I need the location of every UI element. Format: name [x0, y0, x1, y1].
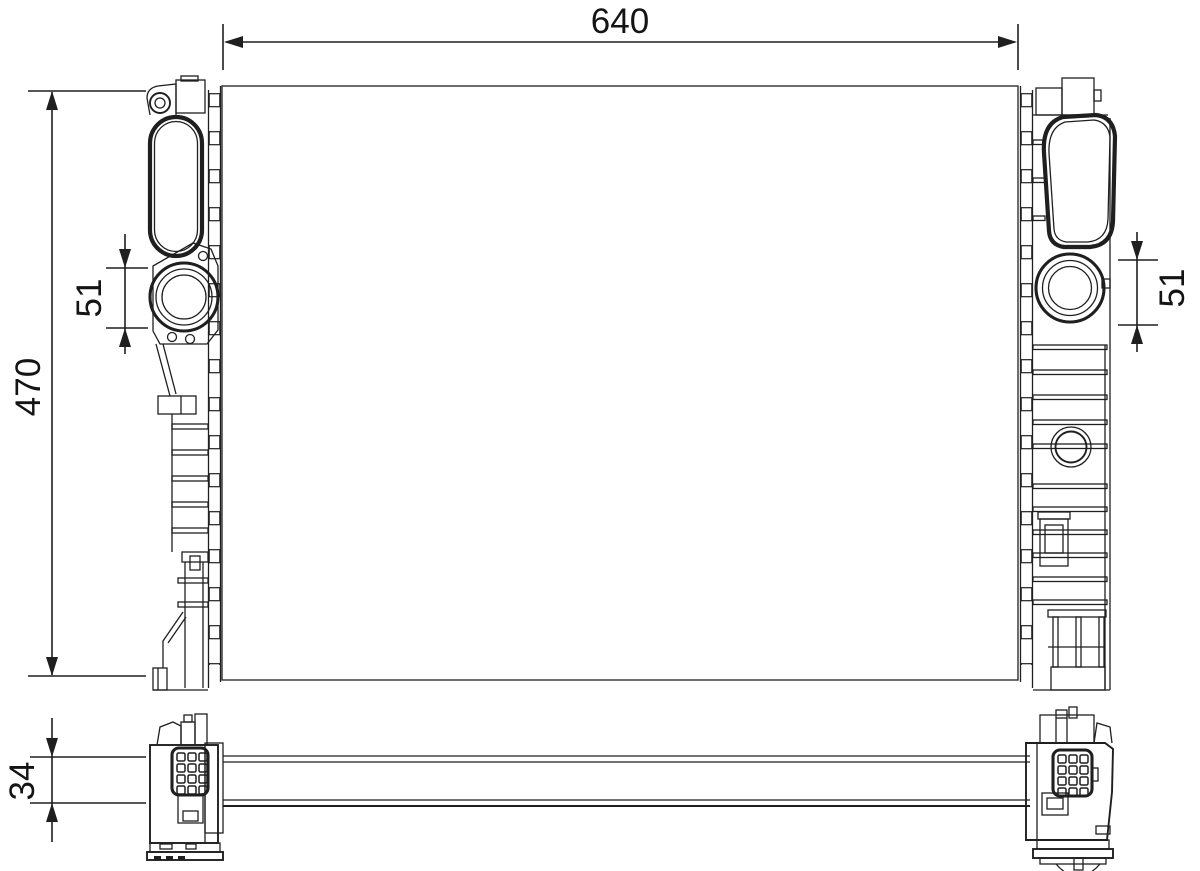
dimension-left-port: 51 [70, 234, 148, 354]
dim-label-right-port: 51 [1153, 269, 1192, 308]
left-mount-eyelet-icon [150, 93, 170, 113]
right-mount-bracket [1026, 707, 1113, 871]
dim-arrow-up-icon [119, 328, 131, 347]
dim-label-crossmember: 34 [3, 762, 42, 801]
right-top-block [1036, 88, 1062, 115]
radiator-technical-drawing: 640 470 51 51 34 [0, 0, 1200, 871]
right-side-bracket [1040, 519, 1068, 566]
right-mount-connector-grid [1057, 754, 1090, 796]
dimension-crossmember-height: 34 [3, 718, 146, 842]
dimension-right-port: 51 [1118, 232, 1192, 352]
dim-label-core-height: 470 [9, 358, 48, 416]
right-tank [1021, 78, 1116, 690]
dim-arrow-down-icon [1131, 241, 1143, 260]
plate-bolt-hole [168, 333, 177, 342]
dim-arrow-up-icon [1131, 325, 1143, 344]
dimension-core-height: 470 [9, 91, 146, 676]
lower-crossmember [147, 707, 1113, 871]
plate-bolt-hole [199, 252, 208, 261]
dim-label-core-width: 640 [591, 2, 649, 41]
right-port-circle [1036, 254, 1104, 322]
dim-arrow-down-icon [46, 738, 58, 757]
dim-arrow-left-icon [224, 36, 243, 48]
dim-arrow-up-icon [46, 803, 58, 822]
right-top-block [1062, 78, 1094, 115]
left-tank [147, 76, 221, 690]
left-tank-core-interface [209, 93, 221, 665]
dim-arrow-up-icon [46, 91, 58, 110]
left-inlet-opening [150, 117, 202, 256]
left-side-lug [158, 396, 196, 414]
dimension-core-width: 640 [223, 2, 1018, 70]
left-port-circle [150, 263, 218, 331]
left-lower-bracket [153, 552, 208, 690]
right-lower-comb [1048, 610, 1106, 690]
dim-label-left-port: 51 [70, 279, 109, 318]
drain-plug [1051, 427, 1091, 467]
plate-bolt-hole [186, 335, 195, 344]
left-mount-bracket [147, 714, 223, 860]
radiator-core [222, 86, 1018, 680]
dim-arrow-down-icon [119, 249, 131, 268]
dim-arrow-right-icon [998, 36, 1017, 48]
right-tank-core-interface [1021, 93, 1033, 665]
drawing-svg: 640 470 51 51 34 [0, 0, 1200, 871]
dim-arrow-down-icon [46, 657, 58, 676]
core-fins [222, 86, 1018, 680]
left-top-block [176, 80, 205, 113]
left-mount-connector-grid [176, 752, 208, 795]
